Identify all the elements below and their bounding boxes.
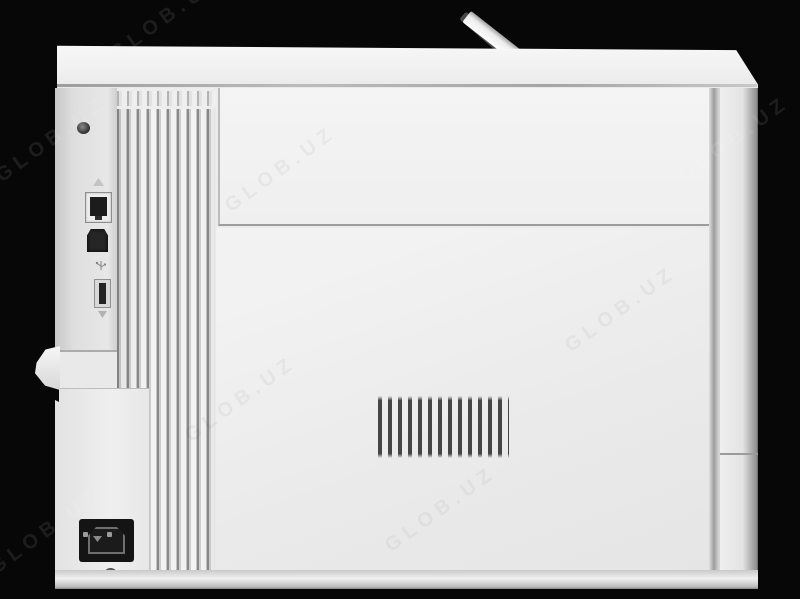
usb-b-port <box>87 229 108 252</box>
side-vent-slats-top <box>117 91 216 106</box>
right-side-strip <box>720 88 758 577</box>
c14-socket <box>88 527 125 554</box>
power-section <box>55 388 150 589</box>
right-strip-seam <box>720 453 758 455</box>
ethernet-port <box>85 192 112 223</box>
usb-a-port <box>94 279 111 308</box>
usb-symbol-icon <box>95 260 107 271</box>
screw-icon <box>77 122 90 134</box>
network-mark-icon <box>93 178 104 186</box>
top-cap-seam <box>57 84 757 87</box>
io-ports-panel <box>55 88 117 352</box>
upper-rear-panel <box>218 88 711 226</box>
socket-pin <box>83 532 88 537</box>
base-lip <box>55 570 758 589</box>
panel-mark-icon <box>98 311 107 318</box>
socket-pin <box>107 532 112 537</box>
center-vent-grille <box>378 396 509 458</box>
power-inlet <box>79 519 134 562</box>
printer-top-cap <box>57 44 758 88</box>
ethernet-port-opening <box>90 197 107 216</box>
right-panel-seam <box>709 88 720 573</box>
printer-body: GLOB.UZ GLOB.UZ GLOB.UZ GLOB.UZ <box>55 88 758 589</box>
usb-a-port-opening <box>99 283 106 304</box>
product-photo: GLOB.UZ GLOB.UZ GLOB.UZ GLOB.UZ <box>0 0 800 599</box>
ethernet-port-tab <box>95 216 102 220</box>
